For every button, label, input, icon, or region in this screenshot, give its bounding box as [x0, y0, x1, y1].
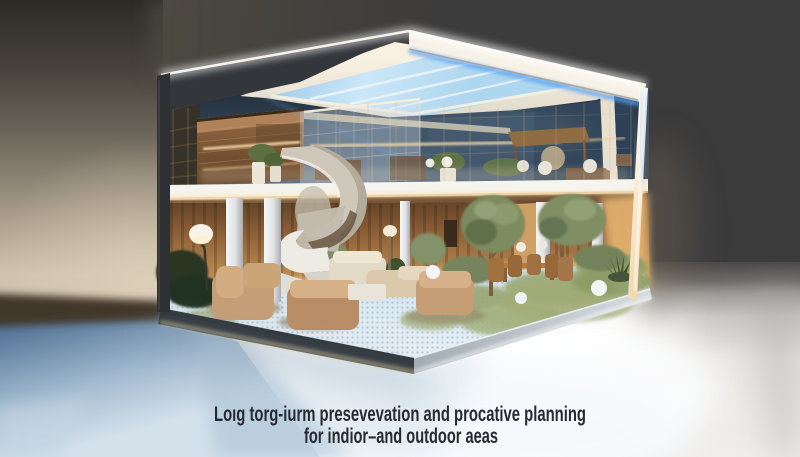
svg-text:for indior–and outdoor aeas: for indior–and outdoor aeas: [304, 425, 498, 448]
svg-text:Loıg torg-iurm presevevation: Loıg torg-iurm presevevation and procati…: [214, 403, 586, 426]
